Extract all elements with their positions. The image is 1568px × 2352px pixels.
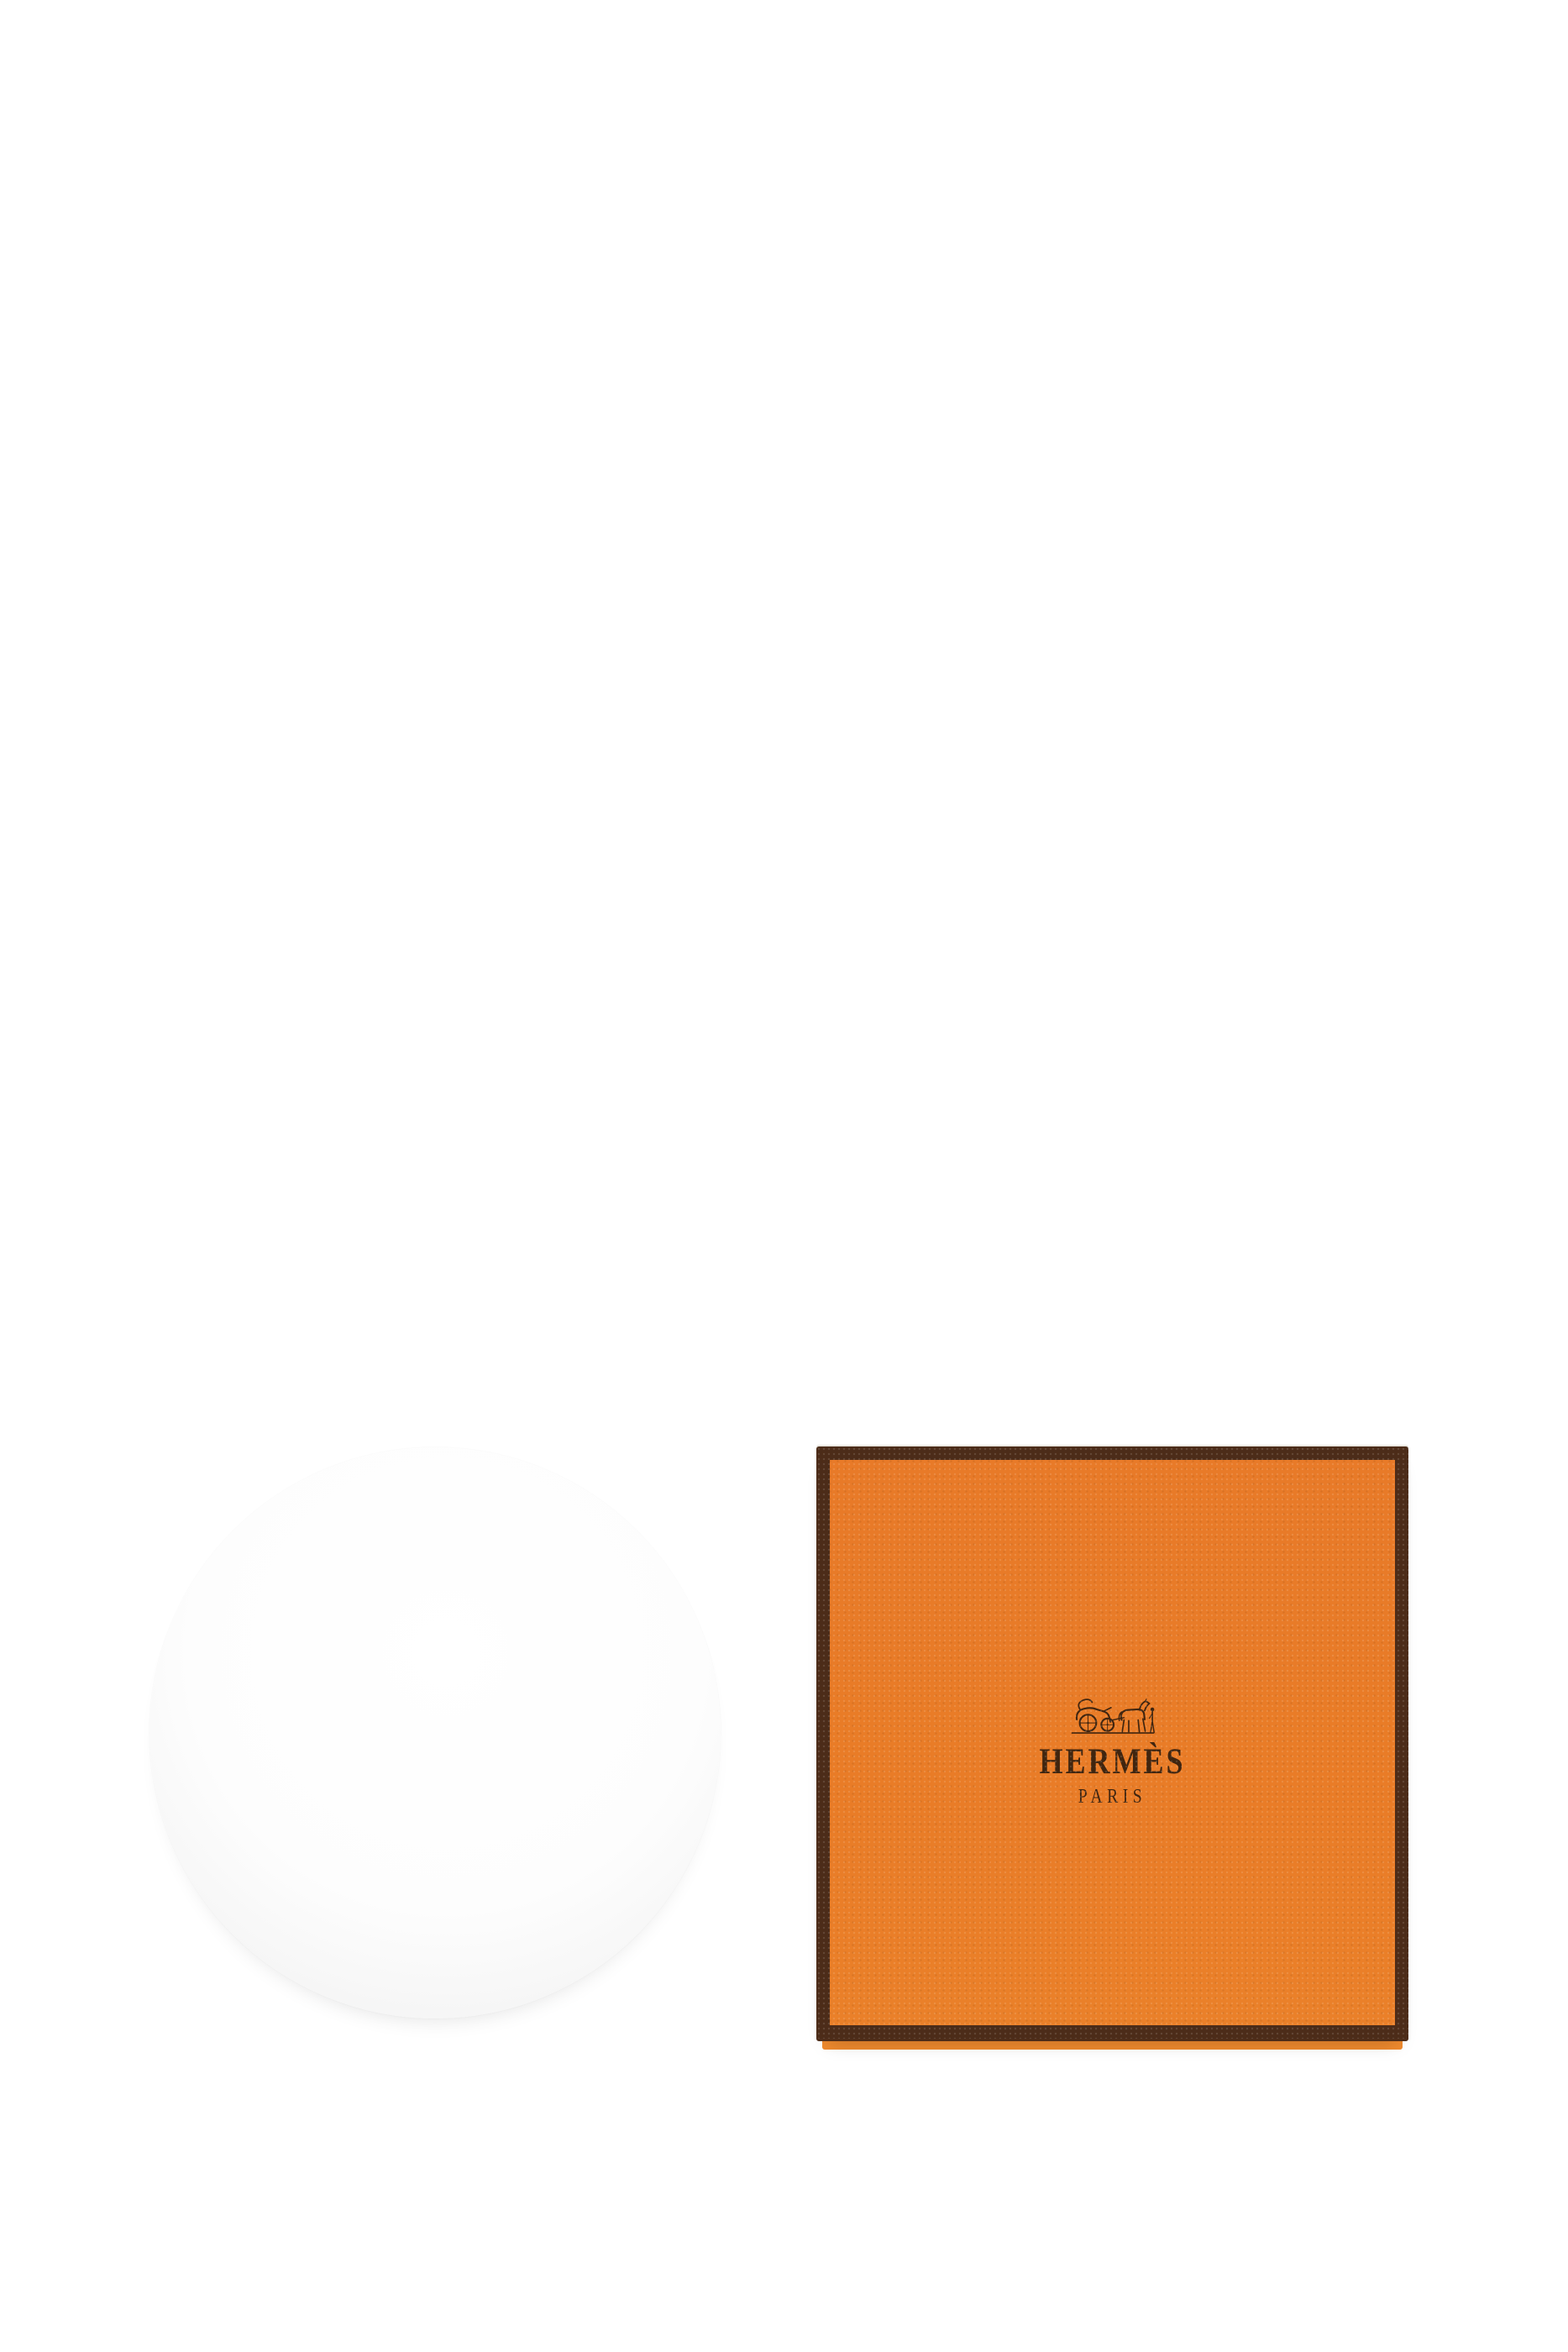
product-photo: H H [0,0,1568,2352]
horse-carriage-icon [1068,1693,1157,1737]
brand-name: HERMÈS [875,1744,1350,1780]
compact-disc: H H [149,1447,721,2019]
brand-city: PARIS [881,1787,1345,1807]
hermes-logo: HERMÈS PARIS [830,1693,1395,1807]
hermes-box: HERMÈS PARIS [816,1446,1408,2041]
